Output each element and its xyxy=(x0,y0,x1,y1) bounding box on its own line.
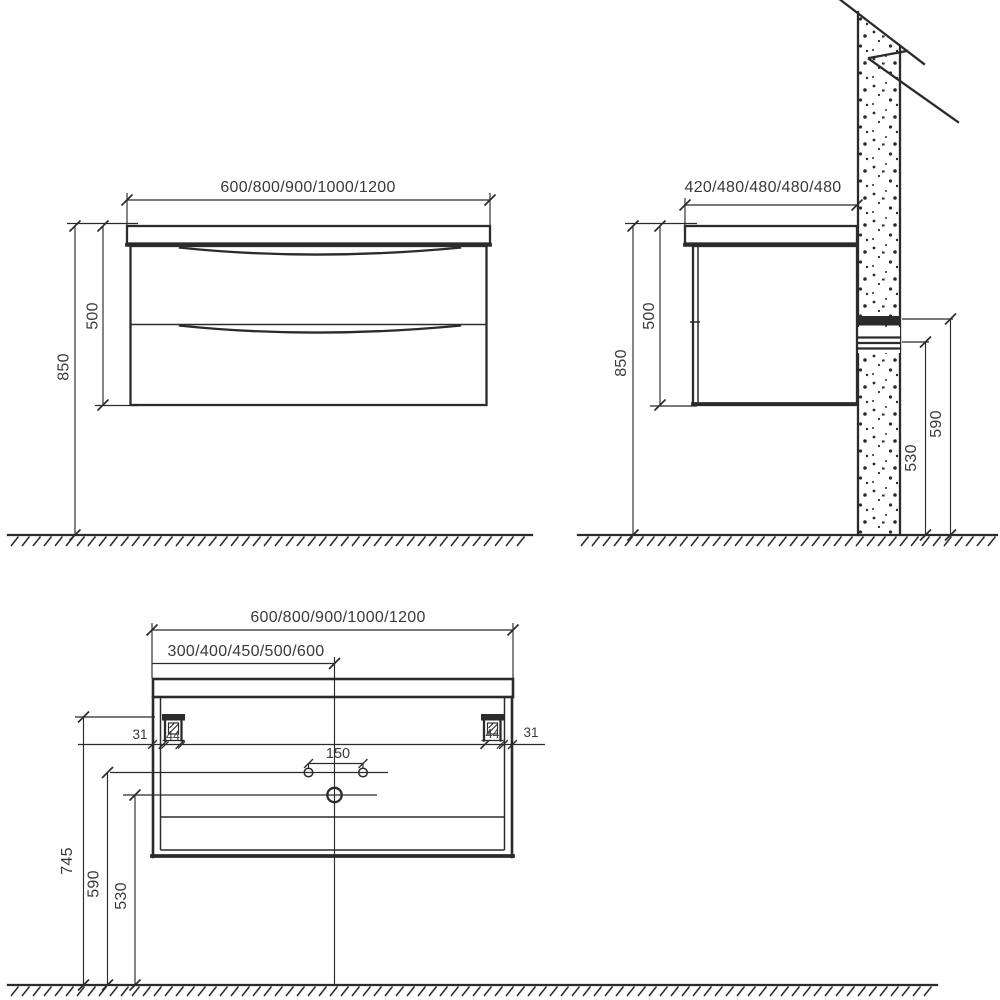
rear-bracket-offset-left-label: 31 xyxy=(132,727,147,742)
technical-drawing-sheet: 600/800/900/1000/1200 500 850 420/480/48… xyxy=(0,0,1000,1000)
rear-bracket-width-left-label: 44 xyxy=(166,729,180,743)
front-floor-hatch xyxy=(8,535,532,546)
wall-drain-band xyxy=(858,316,900,326)
front-view: 600/800/900/1000/1200 500 850 xyxy=(8,179,532,546)
rear-bracket-height-label: 745 xyxy=(59,847,76,875)
rear-drain-height-label: 530 xyxy=(113,882,130,910)
side-view: 420/480/480/480/480 500 850 xyxy=(578,0,997,546)
side-depth-dim-label: 420/480/480/480/480 xyxy=(685,179,842,196)
rear-hole-height-label: 590 xyxy=(86,870,103,898)
wall-speckle-fill xyxy=(858,13,900,535)
rear-bracket-offset-right-label: 31 xyxy=(523,725,538,740)
front-total-height-label: 850 xyxy=(56,353,73,381)
rear-countertop xyxy=(153,679,513,697)
side-countertop xyxy=(685,226,857,244)
front-handle-bottom xyxy=(180,326,460,333)
side-total-height-label: 850 xyxy=(613,349,630,377)
vanity-dimension-drawing: 600/800/900/1000/1200 500 850 420/480/48… xyxy=(0,0,1000,1000)
rear-width-dim-label: 600/800/900/1000/1200 xyxy=(250,609,425,626)
rear-bracket-width-right-label: 44 xyxy=(486,727,500,741)
rear-floor-hatch xyxy=(8,985,937,996)
side-cabinet-body xyxy=(693,246,857,405)
front-handle-top xyxy=(180,248,460,255)
rear-faucet-spacing-label: 150 xyxy=(326,746,350,762)
side-supply-height-label: 530 xyxy=(903,444,920,472)
front-width-dim-label: 600/800/900/1000/1200 xyxy=(220,179,395,196)
front-countertop xyxy=(127,226,490,244)
front-cabinet-height-label: 500 xyxy=(85,302,102,330)
rear-cabinet-sides xyxy=(153,697,512,857)
rear-view: 600/800/900/1000/1200 300/400/450/500/60… xyxy=(8,609,937,996)
side-drain-height-label: 590 xyxy=(928,410,945,438)
side-cabinet-height-label: 500 xyxy=(641,302,658,330)
side-floor-hatch xyxy=(578,535,997,546)
rear-back-panel-edges xyxy=(161,697,505,850)
rear-center-offset-label: 300/400/450/500/600 xyxy=(168,643,325,660)
